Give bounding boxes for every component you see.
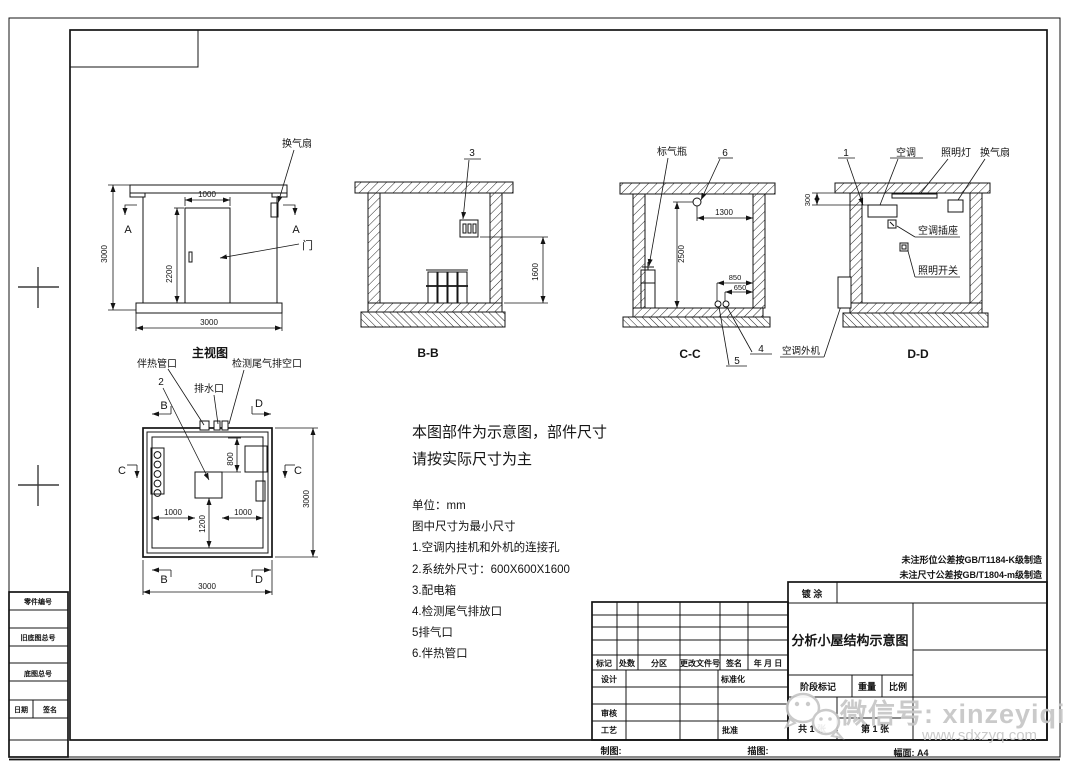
roof-slab [620,183,775,194]
note-item-5: 5排气口 [412,625,453,639]
exhaust-port [222,421,228,430]
note-item-3: 3.配电箱 [412,583,456,597]
ceiling-lamp [892,194,937,198]
note-headline-2: 请按实际尺寸为主 [412,451,532,468]
base-slab [623,317,770,327]
item6-callout: 6 [722,148,728,159]
floor-slab [633,308,763,317]
trace-label: 描图: [748,745,769,756]
right-wall [970,193,982,303]
section-dd-title: D-D [907,347,929,361]
note-unit: 单位：mm [412,498,466,512]
dim-door-height: 2200 [165,265,174,283]
dim-width: 3000 [200,318,218,327]
right-wall [490,193,502,303]
plan-sec-c-right: C [294,465,302,477]
left-wall [368,193,380,303]
exhaust-label: 检测尾气排空口 [232,357,302,370]
drain-label: 排水口 [194,382,224,395]
section-cc: 1300 2500 850 650 标气瓶 6 5 4 空调外机 C-C [620,145,843,367]
fan-label: 换气扇 [282,137,312,150]
base-slab [136,303,282,313]
watermark-wechat-id: 微信号: xinzeyiqi [839,699,1066,729]
item2-callout: 2 [158,377,164,388]
door-handle [189,252,192,262]
tolerance-notes: 未注形位公差按GB/T1184-K级制造 未注尺寸公差按GB/T1804-m级制… [898,554,1043,580]
note-item-6: 6.伴热管口 [412,646,468,660]
section-a-left: A [124,224,132,236]
right-wall [753,194,765,308]
rev-header-count: 处数 [618,658,636,668]
floor-port-4 [723,301,729,307]
weight-label: 重量 [858,681,876,692]
heat-pipe-label: 伴热管口 [137,357,177,370]
sheet-format: 幅面: A4 [893,747,928,758]
standardization-label: 标准化 [720,674,745,684]
dim-door-width: 1000 [198,190,216,199]
drawing-title: 分析小屋结构示意图 [791,633,908,648]
note-headline-1: 本图部件为示意图，部件尺寸 [412,423,607,441]
base-slab [361,312,505,327]
plan-sec-d-top: D [255,398,263,410]
outer-wall [143,428,272,557]
dim-300: 300 [803,194,812,207]
rev-header-docno: 更改文件号 [680,658,720,668]
dim-1600: 1600 [531,263,540,281]
design-label: 设计 [601,674,617,684]
plan-sec-b-top: B [160,400,167,412]
floor-slab [850,303,982,313]
bottom-strip: 制图: 描图: 幅面: A4 [601,745,929,758]
part-no-label: 零件编号 [23,597,52,606]
item5-callout: 5 [734,356,740,367]
watermark: 微信号: xinzeyiqi www.sdxzyq.com [786,694,1066,744]
draw-label: 制图: [601,745,622,756]
floor-slab [368,303,502,312]
gas-bottle-rack [151,448,164,496]
note-item-4: 4.检测尾气排放口 [412,604,502,618]
item3-callout: 3 [469,148,475,159]
side-block: 零件编号 旧底图总号 底图总号 日期 签名 [9,592,68,757]
socket-label: 空调插座 [918,224,958,237]
heat-pipe-port [200,421,209,430]
tolerance-line-2: 未注尺寸公差按GB/T1804-m级制造 [898,569,1043,580]
switch-label: 照明开关 [918,264,958,277]
dim-800: 800 [226,452,235,466]
base-slab [843,313,988,327]
ac-indoor-unit [868,205,897,217]
left-wall [850,193,862,303]
item4-callout: 4 [758,344,764,355]
revision-table: 标记 处数 分区 更改文件号 签名 年 月 日 设计 标准化 审核 工艺 批准 [592,602,788,740]
dim-650: 650 [734,283,747,292]
dim-1000-right: 1000 [234,508,252,517]
dim-height: 3000 [100,245,109,263]
date-label: 日期 [14,705,28,714]
process-label: 工艺 [601,725,617,735]
section-bb: 1600 3 B-B [355,148,548,360]
fan-label: 换气扇 [980,146,1010,159]
note-item-2: 2.系统外尺寸：600X600X1600 [412,562,570,576]
coating-label: 镀 涂 [802,588,824,599]
cad-drawing: 1000 2200 3000 3000 A A 换气扇 门 主视图 [0,0,1070,766]
watermark-website: www.sdxzyq.com [921,727,1037,744]
note-min-size: 图中尺寸为最小尺寸 [412,519,516,533]
stage-mark-label: 阶段标记 [800,681,836,692]
front-view-title: 主视图 [192,345,228,360]
negative-no-label: 底图总号 [24,669,52,678]
note-item-1: 1.空调内挂机和外机的连接孔 [412,540,560,554]
outdoor-unit-label: 空调外机 [782,345,821,357]
review-label: 审核 [601,708,617,718]
ac-label: 空调 [896,146,916,159]
item1-callout: 1 [843,148,849,159]
gas-cylinders [426,270,468,303]
roof-slab [355,182,513,193]
front-view: 1000 2200 3000 3000 A A 换气扇 门 主视图 [100,137,313,360]
dim-1200: 1200 [198,515,207,533]
rev-header-mark: 标记 [595,658,612,668]
floor-port-5 [715,301,721,307]
dim-1000-left: 1000 [164,508,182,517]
rev-header-date: 年 月 日 [754,658,782,668]
analysis-system [195,472,222,498]
scale-label: 比例 [889,681,907,692]
notes: 本图部件为示意图，部件尺寸 请按实际尺寸为主 单位：mm 图中尺寸为最小尺寸 1… [412,423,607,660]
drawing-sheet: 1000 2200 3000 3000 A A 换气扇 门 主视图 [0,0,1070,766]
plan-sec-d-bottom: D [255,574,263,586]
section-a-right: A [292,224,300,236]
lamp-label: 照明灯 [941,147,971,159]
approve-label: 批准 [722,725,738,735]
section-cc-title: C-C [679,347,701,361]
plan-view: 伴热管口 2 排水口 检测尾气排空口 B D C C B D 800 1000 … [118,357,318,595]
centering-mark [18,267,59,506]
heat-pipe-port [693,198,701,206]
corner-box [70,30,198,67]
sheet-border [9,18,1060,760]
dim-3000-right: 3000 [302,490,311,508]
plan-sec-c-left: C [118,465,126,477]
wall-fixture [256,481,265,501]
dim-1300: 1300 [715,208,733,217]
door-label: 门 [302,238,313,252]
ac-outdoor-unit [838,277,851,308]
fan-unit [948,200,963,212]
light-switch [900,243,908,251]
inner-wall [152,437,263,548]
signature-label: 签名 [42,705,57,714]
rev-header-sign: 签名 [725,658,742,668]
dim-2500: 2500 [677,245,686,263]
old-negative-no-label: 旧底图总号 [21,633,56,642]
plan-sec-b-bottom: B [160,574,167,586]
tolerance-line-1: 未注形位公差按GB/T1184-K级制造 [900,554,1043,565]
dim-850: 850 [729,273,742,282]
rev-header-zone: 分区 [651,658,667,668]
cabinet [245,446,267,472]
section-dd: 300 1 空调 照明灯 换气扇 空调插座 照明开关 D-D [803,146,1010,361]
gas-bottle-label: 标气瓶 [657,145,687,158]
drain-port [214,421,220,430]
dim-3000-bottom: 3000 [198,582,216,591]
section-bb-title: B-B [417,346,439,360]
left-wall [633,194,645,308]
